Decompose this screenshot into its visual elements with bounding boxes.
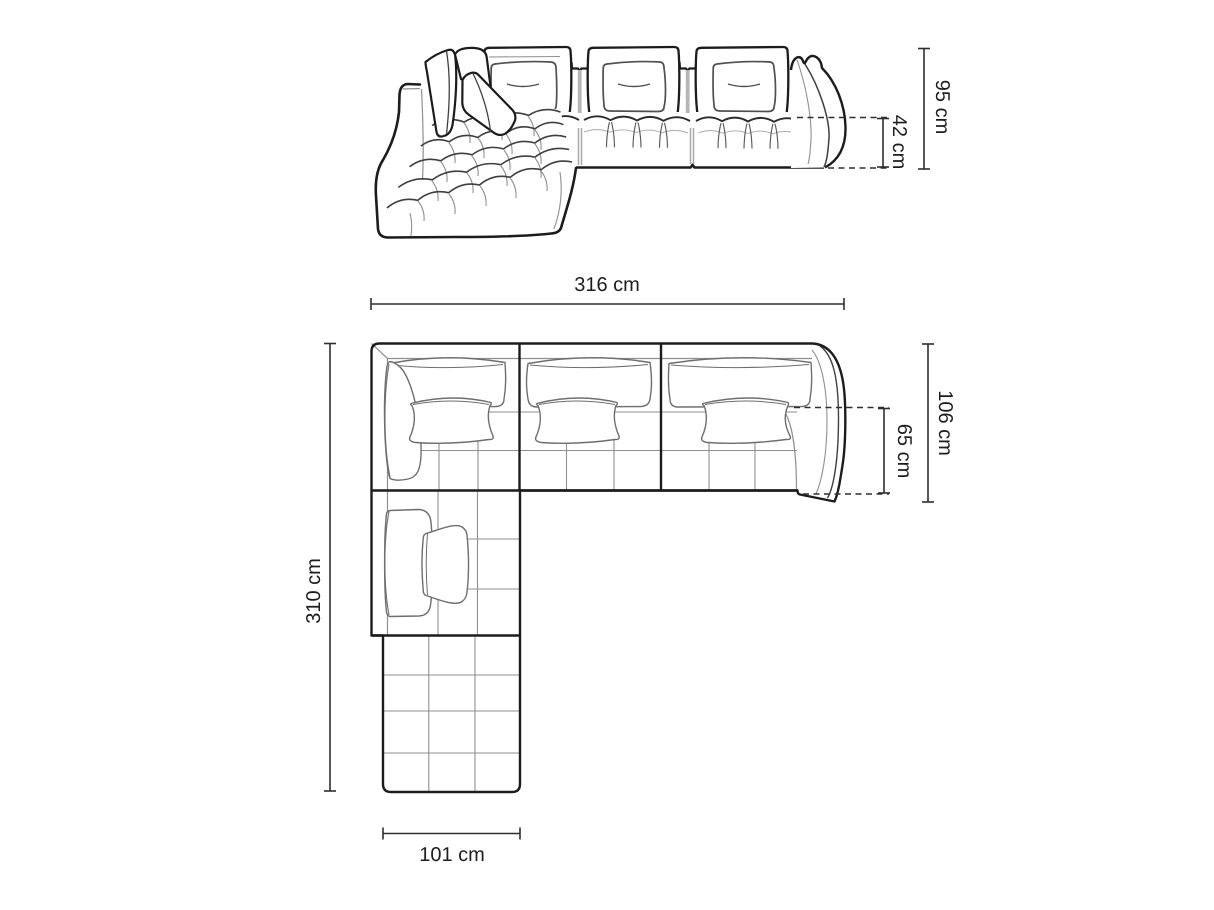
svg-text:101 cm: 101 cm <box>419 844 485 866</box>
svg-text:310 cm: 310 cm <box>303 558 325 624</box>
svg-text:316 cm: 316 cm <box>574 274 640 296</box>
svg-text:42 cm: 42 cm <box>888 115 910 169</box>
svg-text:106 cm: 106 cm <box>934 390 956 456</box>
svg-text:65 cm: 65 cm <box>893 424 915 478</box>
svg-text:95 cm: 95 cm <box>931 80 953 134</box>
